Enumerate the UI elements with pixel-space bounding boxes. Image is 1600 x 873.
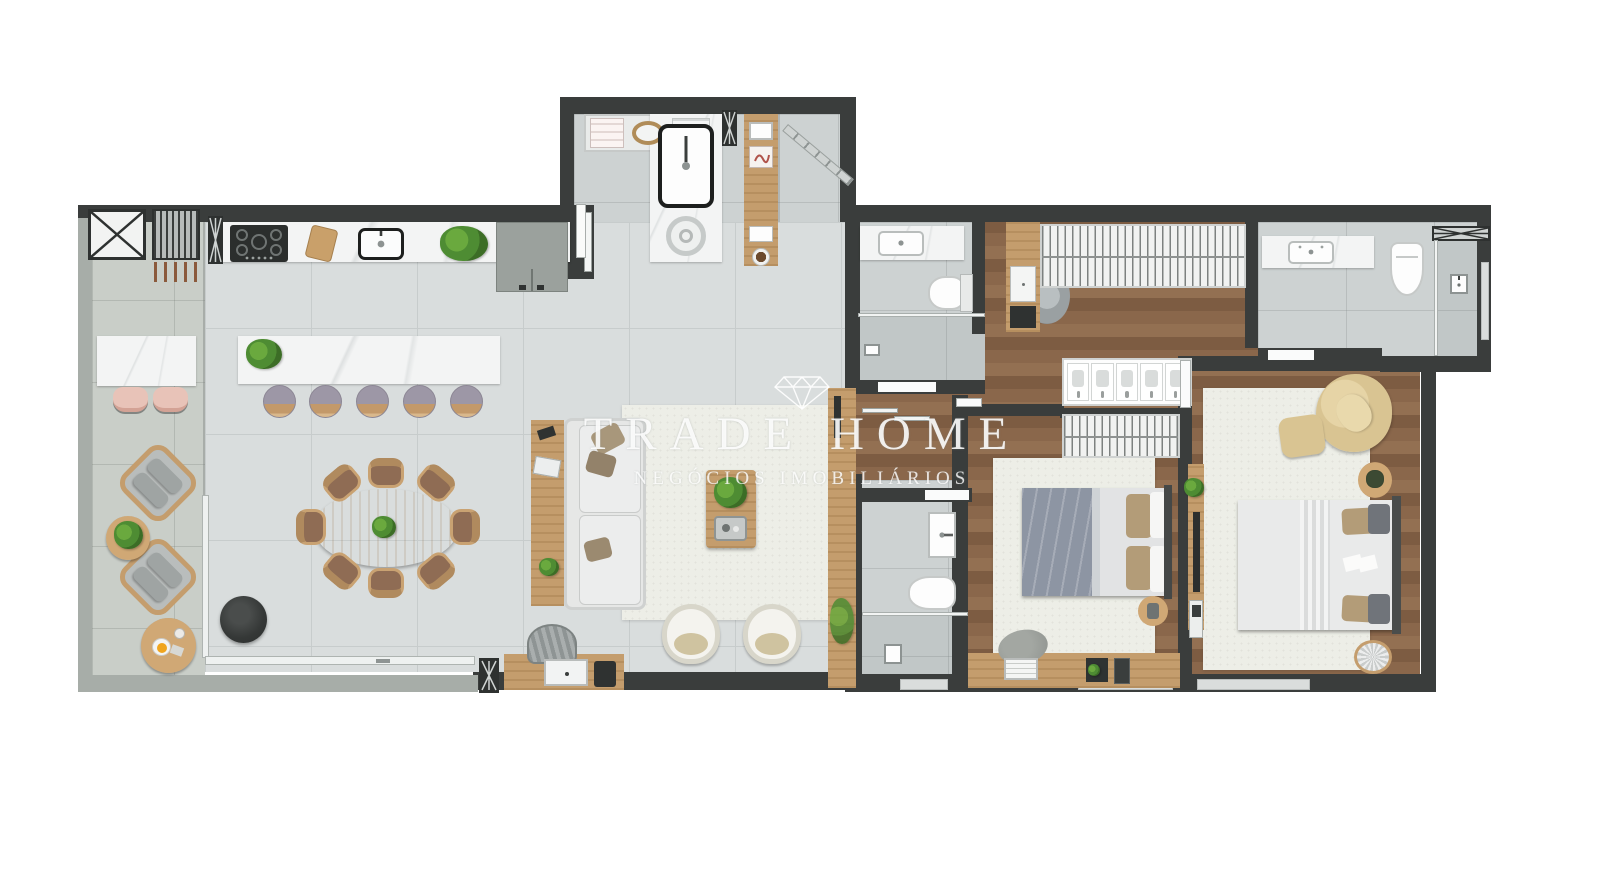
island-plant [246,339,282,369]
bed2-headboard [1392,496,1401,634]
bed2-pillow-gray [1368,594,1390,624]
kitchen-sink [358,228,404,260]
framed-art [749,146,773,168]
bench-plant [1184,478,1204,497]
balcony-parapet-bottom [78,675,478,692]
watermark-brand: TRADE HOME [540,410,1064,459]
laundry-tank-sink [658,124,714,208]
stairs-hatch [152,209,200,260]
masterbath-door-opening [1268,350,1314,360]
desk-frame-dark [1114,658,1130,684]
tray-item [749,226,773,242]
bed2-mattress-wrinkles [1300,500,1330,630]
tv-dot [565,672,569,676]
living-door-frame [479,658,499,693]
nightstand-lamp [1147,603,1159,619]
box-dot [1022,283,1025,286]
service-door-frame [722,110,737,146]
bed1-headboard [1164,485,1172,599]
washer-drum [679,229,693,243]
refrigerator-divider [531,269,533,291]
toilet-seat-line [1396,256,1418,258]
desk-decor-dark [1086,658,1108,682]
bar-chair-pink [153,387,188,412]
balcony-breakfast-table [141,618,196,673]
balcony-bar-counter [97,336,196,386]
watermark: TRADE HOME NEGÓCIOS IMOBILIÁRIOS [540,376,1064,490]
slider-handle [376,659,390,663]
washing-machine [666,216,706,256]
bedroom1-nightstand [1138,596,1168,626]
elevator-shaft [88,209,146,260]
watermark-tagline: NEGÓCIOS IMOBILIÁRIOS [540,468,1064,490]
armchair-cushion [1330,388,1378,437]
bedroom2-armchair [1316,374,1392,452]
masterbath-sink-basin [1288,241,1334,264]
wall-powder-right [972,222,985,334]
dining-chair [368,568,404,598]
accent-armchair [743,604,801,664]
bedroom1-closet-hangers [1062,414,1180,458]
hall-closet-hangers [1040,224,1246,288]
ensuite-sink [928,512,956,558]
armchair-cushion [674,633,708,655]
dresser-cell [1067,363,1089,401]
dresser-cell [1140,363,1162,401]
masterbath-shower-head [1450,274,1468,294]
bar-chair-pink [113,387,148,412]
napkin [170,644,184,657]
framed-picture [749,122,773,140]
av-box [594,661,616,687]
coffee-table-tray [714,516,747,541]
refrigerator-handles [519,285,526,290]
bed1-pillow-tan [1126,546,1152,590]
bar-stool [356,385,389,418]
bar-stool [263,385,296,418]
bed2-folded-towels [1343,554,1364,572]
masterbath-window [1432,226,1490,241]
window-sill [1197,679,1310,690]
bedroom2-tv [1193,512,1200,592]
bar-stool [450,385,483,418]
floorplan-render: TRADE HOME NEGÓCIOS IMOBILIÁRIOS [0,0,1600,873]
entry-door-frame [208,216,223,264]
floor-pouf-dark [220,596,267,643]
sideboard-plant [830,598,854,644]
bed1-pillow-tan [1126,494,1152,538]
radio-on-desk [1004,658,1038,680]
dark-plant [1366,470,1384,488]
bedroom1-bed [1022,488,1170,596]
stairs-hooks [154,262,202,282]
refrigerator [496,222,568,292]
dresser-cell [1116,363,1138,401]
bench-frames [1189,600,1203,638]
powder-shower-head [864,344,880,356]
accent-armchair [662,604,720,664]
bedroom2-bed [1238,500,1398,630]
console-plant [539,558,559,576]
wall-bedroom2-right [1421,356,1436,690]
balcony-plant [114,521,143,549]
refrigerator-handles [537,285,544,290]
cooktop [230,225,288,262]
masterbath-toilet [1390,242,1424,296]
window-sill [900,679,948,690]
hall-tile-edge [778,114,780,222]
basket-by-tv [527,624,577,664]
wall-laundry-top [560,97,856,114]
bedroom1-desk [968,653,1180,688]
bed1-sheet-fold [1092,488,1100,596]
ensuite-door-opening [925,490,969,500]
cabinet-dark-box [1010,306,1036,328]
balcony-parapet-left [78,218,92,692]
bedroom2-door-leaf [1180,360,1191,408]
frame-photo [1192,605,1201,617]
bedroom2-nightstand-striped [1354,640,1392,674]
balcony-glass-slider-horizontal [205,656,475,665]
bar-stool [403,385,436,418]
window-sill [1481,262,1489,340]
powder-shower-glass [858,313,985,317]
masterbath-shower-floor [1438,240,1477,356]
wall-closet-masterbath [1245,222,1258,348]
powder-sink-basin [878,231,924,256]
wall-powder-left [845,222,860,394]
wall-laundry-left [560,97,574,215]
bar-stool [309,385,342,418]
kitchen-plant [440,226,488,261]
teacup [174,628,185,639]
orange-juice [157,643,167,653]
corridor-dresser [1062,358,1192,406]
folded-towels [590,118,624,148]
bed1-duvet [1022,488,1092,596]
ensuite-shower-head [884,644,902,664]
desk-plant-mini [1088,664,1100,676]
wall-laundry-right [840,97,856,222]
dining-chair [296,509,326,545]
wall-top-right [845,205,1491,222]
dining-centerpiece-plant [372,516,396,538]
masterbath-shower-glass [1434,240,1438,356]
dresser-cell [1091,363,1113,401]
powder-toilet-tank [960,274,973,312]
balcony-edge-line [203,222,205,495]
bed2-pillow-gray [1368,504,1390,534]
balcony-glass-slider-vertical [202,495,209,658]
diamond-icon [774,376,830,410]
ensuite-shower-glass [862,612,968,616]
bedroom2-nightstand-plant [1358,462,1392,498]
tv-panel [544,659,588,686]
cabinet-white-box [1010,266,1036,302]
bedroom2-ottoman [1277,413,1326,459]
armchair-cushion [755,633,789,655]
laundry-door-leaf [576,204,586,258]
ensuite-toilet [908,576,956,610]
coffee-cup [752,248,770,266]
dining-chair [368,458,404,488]
dining-chair [450,509,480,545]
